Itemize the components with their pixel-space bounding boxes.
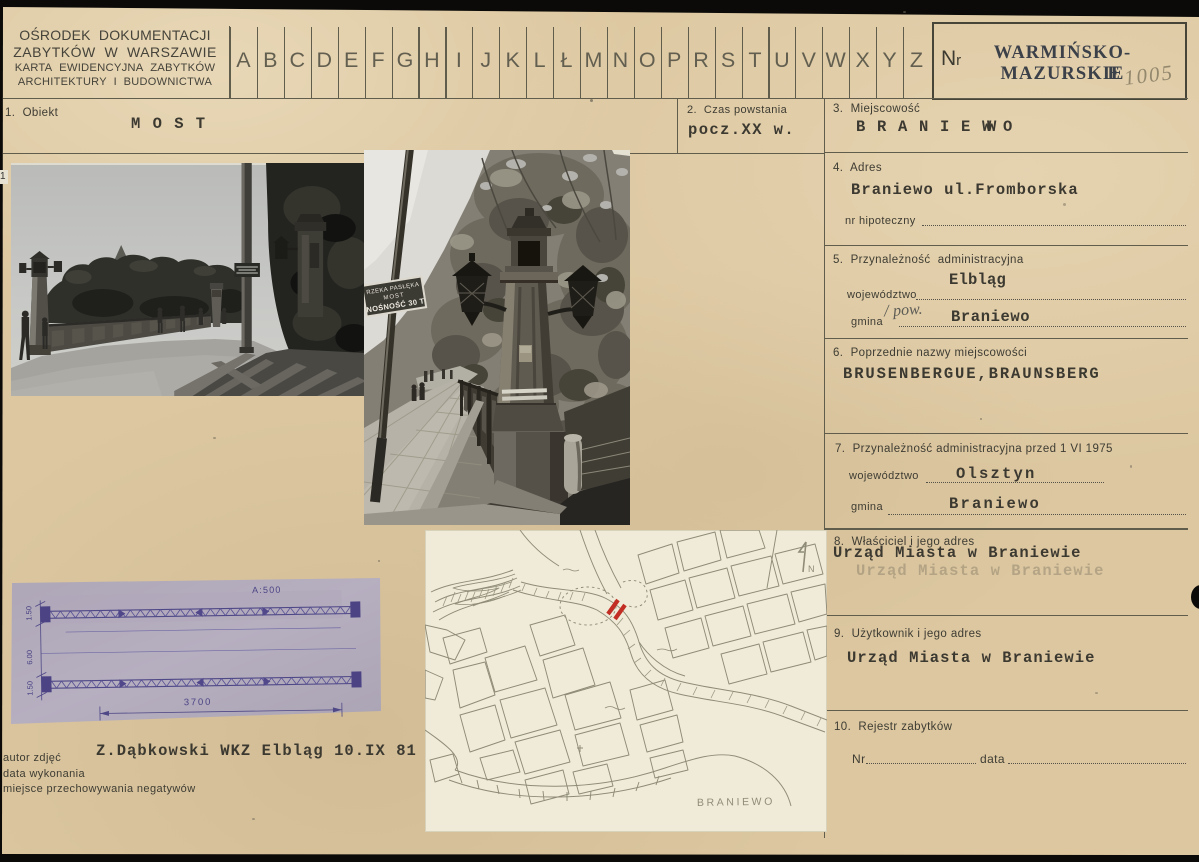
svg-text:A:500: A:500	[252, 585, 282, 595]
svg-text:1.50: 1.50	[25, 681, 34, 696]
svg-text:6.00: 6.00	[25, 650, 34, 665]
svg-text:3700: 3700	[184, 697, 213, 708]
svg-text:1.50: 1.50	[24, 606, 33, 621]
svg-text:N: N	[808, 564, 815, 574]
svg-text:BRANIEWO: BRANIEWO	[697, 796, 775, 809]
